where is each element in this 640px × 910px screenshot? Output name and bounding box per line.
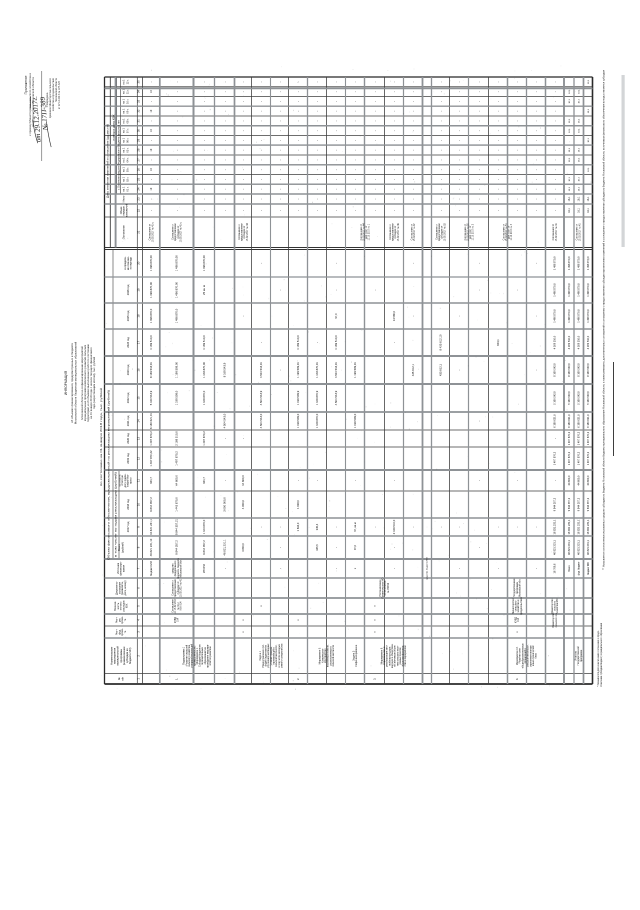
- svg-text:4 169 510,0: 4 169 510,0: [567, 335, 571, 349]
- svg-text:604,1: 604,1: [496, 339, 500, 346]
- svg-text:14: 14: [136, 419, 140, 423]
- svg-text:сельского хозяйства: сельского хозяйства: [188, 644, 191, 667]
- svg-text:15: 15: [136, 396, 140, 400]
- svg-text:11.10.2017 № 2: 11.10.2017 № 2: [472, 223, 475, 240]
- svg-text:2022 год: 2022 год: [126, 392, 130, 403]
- svg-text:ИНФОРМАЦИЯ: ИНФОРМАЦИЯ: [64, 370, 68, 395]
- svg-text:24: 24: [136, 187, 140, 191]
- svg-text:11: 11: [136, 479, 140, 482]
- svg-text:п/п: п/п: [120, 676, 124, 680]
- svg-text:Всего: Всего: [568, 565, 571, 572]
- svg-text:08 г.: 08 г.: [126, 118, 130, 123]
- svg-text:05 г.: 05 г.: [126, 147, 130, 152]
- svg-text:сельской местности: сельской местности: [332, 644, 335, 666]
- svg-text:46 821 231,10: 46 821 231,10: [149, 538, 153, 556]
- svg-text:врату: врату: [130, 477, 133, 484]
- svg-text:5 160 543,9: 5 160 543,9: [567, 391, 571, 405]
- svg-text:06 г.: 06 г.: [126, 138, 130, 143]
- svg-text:базы: базы: [536, 653, 538, 659]
- svg-text:1 448 870,91: 1 448 870,91: [315, 362, 319, 379]
- svg-text:30: 30: [136, 129, 140, 133]
- svg-text:фед. бюджет: фед. бюджет: [578, 561, 581, 576]
- svg-text:4 169 510,0: 4 169 510,0: [586, 335, 590, 349]
- svg-text:Мероприятие 1.: Мероприятие 1.: [197, 647, 199, 665]
- svg-text:9 844 357,2: 9 844 357,2: [175, 540, 179, 555]
- svg-text:9 844 357,2: 9 844 357,2: [202, 540, 206, 555]
- svg-text:16,1: 16,1: [578, 208, 581, 213]
- svg-text:16 821 231,1: 16 821 231,1: [586, 519, 590, 534]
- svg-text:1 496 870,00: 1 496 870,00: [175, 255, 179, 272]
- svg-text:на 1: на 1: [122, 137, 126, 143]
- svg-text:1 496 870,0: 1 496 870,0: [553, 309, 557, 323]
- svg-text:4 169 510,0: 4 169 510,0: [149, 335, 153, 350]
- svg-text:9 844 357,2: 9 844 357,2: [553, 497, 557, 511]
- svg-text:1 199 509,91: 1 199 509,91: [353, 362, 357, 379]
- svg-text:25 кв. м: 25 кв. м: [202, 285, 206, 295]
- svg-text:1 496 870,0: 1 496 870,0: [553, 256, 557, 270]
- svg-text:15.02.2017 № 51: 15.02.2017 № 51: [505, 223, 508, 242]
- svg-text:15.02.2017 № 41-с: 15.02.2017 № 41-с: [179, 221, 182, 242]
- svg-text:на 1: на 1: [122, 167, 126, 173]
- svg-text:1 497 870,2: 1 497 870,2: [577, 451, 581, 465]
- svg-text:29: 29: [136, 138, 140, 142]
- svg-text:11 г.: 11 г.: [126, 89, 130, 94]
- svg-text:4 504 543,0: 4 504 543,0: [259, 413, 263, 428]
- svg-text:18: 18: [136, 314, 140, 318]
- svg-text:1 496 870,0: 1 496 870,0: [586, 256, 590, 270]
- svg-text:на 1: на 1: [122, 147, 126, 153]
- svg-text:1 496 870,0: 1 496 870,0: [567, 283, 571, 297]
- svg-text:на 1: на 1: [122, 108, 126, 114]
- svg-text:1 634,0: 1 634,0: [296, 522, 300, 531]
- svg-text:Мероприятие 8.: Мероприятие 8.: [381, 647, 383, 665]
- svg-text:Соглашение о: Соглашение о: [390, 224, 392, 240]
- svg-text:2023 год: 2023 год: [126, 364, 130, 375]
- svg-text:1 496 870,0: 1 496 870,0: [586, 309, 590, 323]
- svg-text:9 844 357,2: 9 844 357,2: [586, 497, 590, 511]
- svg-text:16 821 231,1: 16 821 231,1: [567, 519, 571, 534]
- svg-text:31: 31: [136, 119, 140, 123]
- svg-text:Государственная: Государственная: [514, 578, 516, 597]
- svg-text:ленных пунктов,: ленных пунктов,: [400, 647, 402, 665]
- svg-text:44 600,0: 44 600,0: [241, 475, 245, 486]
- svg-text:44 600,0: 44 600,0: [175, 475, 179, 486]
- svg-text:Софинансирование: Софинансирование: [355, 644, 358, 667]
- svg-text:4 169 510,0: 4 169 510,0: [577, 335, 581, 349]
- svg-text:20: 20: [136, 261, 140, 265]
- svg-text:11.10.2017 № 1: 11.10.2017 № 1: [368, 223, 371, 240]
- svg-text:на 1: на 1: [122, 186, 126, 192]
- svg-text:12 г.: 12 г.: [126, 79, 130, 84]
- svg-text:1 199 509,0: 1 199 509,0: [175, 390, 179, 405]
- svg-text:8 169 543,91: 8 169 543,91: [149, 362, 153, 379]
- svg-text:16 821 231,1: 16 821 231,1: [577, 519, 581, 534]
- svg-text:4.: 4.: [515, 677, 519, 679]
- svg-text:продовольствия: продовольствия: [521, 597, 523, 615]
- svg-text:1 497 870,2: 1 497 870,2: [586, 431, 590, 445]
- svg-text:Соглашение от: Соглашение от: [553, 223, 555, 240]
- svg-text:1 496 870,00: 1 496 870,00: [149, 255, 153, 272]
- svg-text:реконструкция авто-: реконструкция авто-: [387, 645, 389, 667]
- svg-text:2024 год: 2024 год: [126, 337, 130, 348]
- svg-text:на 1: на 1: [122, 157, 126, 163]
- svg-text:1 496 870,0: 1 496 870,0: [175, 308, 179, 323]
- svg-text:12: 12: [136, 457, 140, 461]
- svg-text:15.02.2017 № 41: 15.02.2017 № 41: [578, 223, 581, 242]
- svg-text:1.: 1.: [175, 677, 179, 679]
- svg-text:дата, номер): дата, номер): [124, 580, 127, 595]
- svg-text:1 443 870,0: 1 443 870,0: [202, 519, 206, 534]
- svg-text:6 180 621,0: 6 180 621,0: [577, 414, 581, 428]
- svg-text:2.: 2.: [296, 677, 300, 679]
- svg-text:субсидии от: субсидии от: [244, 225, 246, 239]
- svg-text:4 169 510,0: 4 169 510,0: [296, 335, 300, 350]
- svg-text:1 448 870,00: 1 448 870,00: [202, 362, 206, 379]
- svg-text:программе: программе: [580, 649, 583, 662]
- svg-text:2020 год: 2020 год: [126, 433, 130, 444]
- svg-text:в том числе по годам реализаци: в том числе по годам реализации (рублей): [115, 472, 118, 557]
- svg-text:2019 год: 2019 год: [126, 453, 130, 464]
- svg-text:предоставлении: предоставлении: [175, 223, 177, 241]
- svg-text:02 г.: 02 г.: [126, 177, 130, 182]
- svg-text:** Указывается остаток неиспол: ** Указывается остаток неиспользованных …: [603, 69, 606, 570]
- svg-text:46 821 231,1: 46 821 231,1: [586, 539, 590, 554]
- svg-text:345,4: 345,4: [315, 523, 319, 530]
- svg-text:32: 32: [136, 109, 140, 113]
- svg-text:28: 28: [136, 148, 140, 152]
- svg-text:464,7: 464,7: [202, 477, 206, 484]
- svg-text:го периода: го периода: [130, 256, 133, 269]
- svg-text:34: 34: [136, 90, 140, 94]
- svg-text:хозяйства и: хозяйства и: [517, 599, 520, 612]
- svg-text:97,0: 97,0: [334, 313, 338, 319]
- svg-text:9 844 357,2: 9 844 357,2: [577, 497, 581, 511]
- svg-text:35: 35: [136, 80, 140, 84]
- svg-text:населенных пунктов,: населенных пунктов,: [328, 644, 330, 667]
- svg-text:мобильных дорог,: мобильных дорог,: [389, 646, 391, 666]
- svg-text:Итого: Итого: [122, 195, 126, 202]
- svg-text:1 199 509,0: 1 199 509,0: [353, 413, 357, 428]
- svg-text:464,7: 464,7: [149, 477, 153, 484]
- svg-text:1 443 870,0: 1 443 870,0: [175, 497, 179, 512]
- svg-text:16 821 231,1: 16 821 231,1: [149, 519, 153, 536]
- svg-text:04 г.: 04 г.: [126, 157, 130, 162]
- svg-text:на 1: на 1: [122, 89, 126, 95]
- svg-text:1 496 870,00: 1 496 870,00: [175, 282, 179, 299]
- svg-text:семей и специалистов: семей и специалистов: [280, 643, 283, 668]
- svg-text:номер и дата КБК: номер и дата КБК: [113, 114, 116, 141]
- svg-text:15.02.2017 № 41: 15.02.2017 № 41: [179, 578, 182, 597]
- svg-text:19: 19: [136, 288, 140, 292]
- svg-text:обустройство: обустройство: [324, 648, 327, 663]
- svg-text:1 199 509,91: 1 199 509,91: [296, 362, 300, 379]
- svg-text:полномочий: полномочий: [125, 203, 128, 217]
- svg-text:бюджет МО: бюджет МО: [149, 561, 153, 576]
- svg-text:9 844 357,2: 9 844 357,2: [149, 497, 153, 512]
- svg-text:46 821 231,1: 46 821 231,1: [553, 539, 557, 554]
- svg-text:№ 41-с: № 41-с: [177, 601, 180, 610]
- svg-text:97,0: 97,0: [353, 544, 357, 550]
- svg-text:6 180 621,0: 6 180 621,0: [567, 414, 571, 428]
- svg-text:сельской местности,: сельской местности,: [275, 644, 278, 667]
- svg-text:26: 26: [136, 168, 140, 172]
- svg-text:3 000 000,0: 3 000 000,0: [223, 497, 227, 512]
- svg-text:4 504 543,0: 4 504 543,0: [223, 413, 227, 428]
- svg-text:4 504 543,91: 4 504 543,91: [334, 362, 338, 379]
- svg-text:1 496 870,0: 1 496 870,0: [577, 256, 581, 270]
- svg-text:4 800,0: 4 800,0: [241, 543, 245, 552]
- svg-text:Министерство: Министерство: [513, 598, 515, 614]
- svg-text:сельской местности,: сельской местности,: [527, 644, 530, 667]
- svg-text:года (нарастающим итогом), тыс: года (нарастающим итогом), тыс. рублей: [92, 356, 96, 409]
- svg-text:2026 год: 2026 год: [126, 284, 130, 295]
- svg-text:1 496 870,00: 1 496 870,00: [149, 282, 153, 299]
- svg-text:1 448 870,9: 1 448 870,9: [315, 390, 319, 405]
- svg-text:2021 год: 2021 год: [126, 415, 130, 426]
- svg-text:1 496 870,0: 1 496 870,0: [149, 308, 153, 323]
- svg-text:ИТОГО: ИТОГО: [202, 564, 206, 573]
- svg-text:1 497 870,2: 1 497 870,2: [175, 451, 179, 466]
- svg-text:хозяйства МО: хозяйства МО: [556, 598, 559, 613]
- svg-text:4 169 510,0: 4 169 510,0: [202, 335, 206, 350]
- svg-text:01 г.: 01 г.: [126, 186, 130, 191]
- svg-text:5 160 543,9: 5 160 543,9: [149, 390, 153, 405]
- svg-text:условий граждан,: условий граждан,: [270, 646, 273, 665]
- svg-text:22: 22: [136, 209, 140, 213]
- svg-text:1 497 870,2: 1 497 870,2: [567, 451, 571, 465]
- svg-text:№ 788/39: № 788/39: [387, 582, 390, 593]
- svg-text:Постановление: Постановление: [380, 579, 382, 596]
- svg-text:с Остатком средств Федеральног: с Остатком средств Федерального бюджета …: [117, 119, 120, 190]
- svg-text:10: 10: [136, 503, 140, 507]
- svg-text:1 497 870,2: 1 497 870,2: [567, 431, 571, 445]
- svg-text:44 600,0: 44 600,0: [567, 475, 571, 485]
- svg-text:1 199 509,00: 1 199 509,00: [175, 362, 179, 379]
- svg-text:16,1: 16,1: [587, 196, 590, 201]
- svg-text:3.: 3.: [372, 677, 376, 679]
- svg-text:Объем финансового обеспечения,: Объем финансового обеспечения, предусмот…: [107, 390, 111, 560]
- svg-text:46 821 231,1: 46 821 231,1: [567, 539, 571, 554]
- svg-text:1 497 870,2: 1 497 870,2: [577, 431, 581, 445]
- svg-text:образований на: образований на: [204, 647, 207, 665]
- svg-text:Соглашение о: Соглашение о: [239, 224, 241, 240]
- svg-text:субсидии от: субсидии от: [395, 225, 397, 239]
- svg-text:Даты внесения изменений в согл: Даты внесения изменений в соглашение (дд…: [107, 124, 110, 198]
- svg-text:по состоянию на 01 января 2018: по состоянию на 01 января 2018 года, тыс…: [99, 387, 103, 486]
- svg-text:1 497 870,22: 1 497 870,22: [149, 450, 153, 467]
- svg-text:15.02.2017 № 50: 15.02.2017 № 50: [467, 223, 470, 242]
- svg-text:1 497 870,2: 1 497 870,2: [553, 451, 557, 465]
- svg-text:Развитие сети: Развитие сети: [520, 647, 522, 663]
- svg-text:Московской области бюджетам му: Московской области бюджетам муниципальны…: [73, 341, 77, 424]
- svg-text:435 612,1: 435 612,1: [438, 364, 442, 376]
- svg-text:бюджета МО): бюджета МО): [128, 647, 132, 664]
- svg-text:Предоставление суб-: Предоставление суб-: [263, 644, 265, 667]
- svg-text:33: 33: [136, 99, 140, 103]
- svg-text:2017 год: 2017 год: [126, 521, 130, 532]
- svg-text:Соглашение о: Соглашение о: [436, 224, 438, 240]
- svg-text:16,1: 16,1: [578, 196, 581, 201]
- svg-text:6 180 621,01: 6 180 621,01: [149, 413, 153, 430]
- svg-text:2 169 510,0: 2 169 510,0: [175, 431, 179, 446]
- svg-text:ятий по развитию: ятий по развитию: [209, 646, 212, 665]
- svg-text:1 497 870,2: 1 497 870,2: [149, 431, 153, 446]
- svg-text:10 г.: 10 г.: [126, 99, 130, 104]
- svg-text:2025 год: 2025 год: [126, 310, 130, 321]
- svg-text:8 169 543,9: 8 169 543,9: [553, 363, 557, 377]
- svg-text:1 496 870,0: 1 496 870,0: [577, 283, 581, 297]
- svg-text:ально-технической: ально-технической: [532, 645, 535, 666]
- svg-text:6 180 621,0: 6 180 621,0: [553, 414, 557, 428]
- svg-text:4 504 543,91: 4 504 543,91: [259, 362, 263, 379]
- svg-text:44 600,0: 44 600,0: [577, 475, 581, 485]
- svg-text:1 199 509,0: 1 199 509,0: [296, 413, 300, 428]
- svg-text:на 1: на 1: [122, 98, 126, 104]
- svg-text:Мероприятие 5.: Мероприятие 5.: [320, 647, 322, 665]
- svg-text:КБК 014: КБК 014: [180, 601, 182, 610]
- svg-text:15.02.2017 № 49: 15.02.2017 № 49: [397, 222, 400, 241]
- svg-text:5 160 543,9: 5 160 543,9: [586, 391, 590, 405]
- svg-text:15.02.2017 № 41-с: 15.02.2017 № 41-с: [151, 221, 154, 242]
- svg-text:4 504 543,9: 4 504 543,9: [259, 390, 263, 405]
- svg-text:13: 13: [136, 437, 140, 441]
- svg-text:09 г.: 09 г.: [126, 108, 130, 113]
- svg-text:субсидии от: субсидии от: [442, 225, 444, 239]
- svg-text:вания: вания: [123, 564, 126, 572]
- svg-text:предоставлении: предоставлении: [175, 578, 177, 596]
- svg-text:15.02.2017 № 44: 15.02.2017 № 44: [246, 222, 249, 241]
- svg-text:9 844 357,21: 9 844 357,21: [175, 519, 179, 536]
- svg-text:(рублей): (рублей): [120, 542, 124, 553]
- svg-text:КБК: КБК: [126, 603, 129, 608]
- svg-text:9 844 357,2: 9 844 357,2: [567, 497, 571, 511]
- svg-text:15.02.2017 № 47: 15.02.2017 № 47: [413, 223, 416, 242]
- svg-text:Основание: Основание: [122, 225, 126, 239]
- svg-text:4 504 543,9: 4 504 543,9: [334, 390, 338, 405]
- svg-text:345,5: 345,5: [315, 544, 319, 551]
- svg-text:8 169 543,9: 8 169 543,9: [577, 363, 581, 377]
- svg-text:от 15.02.2017: от 15.02.2017: [175, 598, 177, 613]
- svg-text:улучшение жилищных: улучшение жилищных: [268, 643, 270, 668]
- svg-text:44 600,0: 44 600,0: [586, 475, 590, 485]
- svg-text:1 496 870,0: 1 496 870,0: [577, 309, 581, 323]
- svg-text:97, кв.м: 97, кв.м: [353, 522, 357, 532]
- svg-text:ства и переработки: ства и переработки: [405, 645, 407, 667]
- svg-text:11.10.2017 № 3: 11.10.2017 № 3: [510, 223, 513, 240]
- svg-text:2 169 510,0: 2 169 510,0: [392, 519, 396, 534]
- svg-text:общеобразовательных: общеобразовательных: [522, 643, 524, 669]
- svg-text:федерального: федерального: [174, 560, 177, 576]
- svg-text:8 435 612,10: 8 435 612,10: [439, 334, 443, 351]
- svg-text:1 497 870,2: 1 497 870,2: [586, 451, 590, 465]
- svg-text:03 г.: 03 г.: [126, 167, 130, 172]
- svg-text:Московской обл.: Московской обл.: [179, 559, 182, 577]
- svg-text:средства бюджета МО: средства бюджета МО: [427, 557, 429, 580]
- svg-text:1 497 870,2: 1 497 870,2: [202, 431, 206, 446]
- svg-text:сельского хоз.: сельского хоз.: [556, 612, 558, 627]
- svg-text:организаций в: организаций в: [524, 647, 527, 663]
- svg-text:на 1: на 1: [122, 118, 126, 124]
- svg-text:16 709,6: 16 709,6: [553, 563, 557, 573]
- svg-text:Комплексное: Комплексное: [322, 648, 324, 663]
- svg-text:муниципальных: муниципальных: [202, 646, 204, 664]
- svg-text:1 448 870,0: 1 448 870,0: [202, 390, 206, 405]
- svg-text:4 800,0: 4 800,0: [241, 499, 245, 509]
- svg-text:1 199 509,9: 1 199 509,9: [296, 390, 300, 405]
- svg-text:1 496 870,0: 1 496 870,0: [567, 309, 571, 323]
- svg-text:435 612,1: 435 612,1: [411, 363, 415, 376]
- svg-text:сидий бюджетам на: сидий бюджетам на: [265, 644, 268, 666]
- svg-text:5 160 543,9: 5 160 543,9: [577, 391, 581, 405]
- svg-text:8 169 543,9: 8 169 543,9: [223, 362, 227, 377]
- svg-text:21: 21: [136, 230, 140, 234]
- svg-text:15.02.2017 № 41: 15.02.2017 № 41: [555, 222, 558, 241]
- svg-text:Московской обл.: Московской обл.: [518, 579, 521, 597]
- svg-text:8 169 543,9: 8 169 543,9: [567, 363, 571, 377]
- svg-text:17: 17: [136, 341, 140, 345]
- svg-text:ставлении субсидии бюджету мун: ставлении субсидии бюджету муниципальног…: [601, 622, 603, 687]
- svg-text:2018 год: 2018 год: [126, 499, 130, 510]
- svg-text:16,1: 16,1: [587, 208, 590, 213]
- svg-text:4 169 510,0: 4 169 510,0: [553, 335, 557, 349]
- svg-text:5 160 543,9: 5 160 543,9: [553, 391, 557, 405]
- svg-text:от 27.12.2017 № 17П-374: от 27.12.2017 № 17П-374: [58, 80, 61, 109]
- svg-text:07 г.: 07 г.: [126, 128, 130, 133]
- svg-text:14 580,0: 14 580,0: [392, 310, 396, 321]
- svg-text:15.02.2017 № 52: 15.02.2017 № 52: [443, 222, 446, 241]
- svg-text:бюджет МО: бюджет МО: [588, 562, 590, 575]
- svg-text:16: 16: [136, 368, 140, 372]
- svg-text:«Развитие отраслей: «Развитие отраслей: [185, 644, 188, 667]
- svg-text:16,1: 16,1: [568, 208, 571, 213]
- svg-text:1 496 870,0: 1 496 870,0: [553, 283, 557, 297]
- svg-text:27: 27: [136, 158, 140, 162]
- svg-text:проживающих в: проживающих в: [273, 646, 275, 664]
- svg-text:но значимым объек-: но значимым объек-: [395, 645, 397, 667]
- svg-text:4 169 510,0: 4 169 510,0: [334, 335, 338, 350]
- svg-text:1 448 870,0: 1 448 870,0: [315, 413, 319, 428]
- svg-text:23: 23: [136, 197, 140, 201]
- svg-text:от 25.10.2016: от 25.10.2016: [385, 580, 387, 595]
- svg-text:1 496 870,00: 1 496 870,00: [202, 255, 206, 272]
- svg-text:16,1: 16,1: [568, 196, 571, 201]
- svg-text:* Указывается дата заключения: * Указывается дата заключения соглашения…: [598, 630, 600, 687]
- svg-text:6 180 621,0: 6 180 621,0: [586, 414, 590, 428]
- svg-text:1 496 870,0: 1 496 870,0: [586, 283, 590, 297]
- svg-text:и перерабатывающей: и перерабатывающей: [191, 643, 194, 667]
- svg-text:на 1: на 1: [122, 128, 126, 134]
- svg-text:46 821 231,1: 46 821 231,1: [577, 539, 581, 554]
- svg-text:на 1: на 1: [122, 176, 126, 182]
- svg-text:8 169 543,9: 8 169 543,9: [586, 363, 590, 377]
- svg-text:1 638,0: 1 638,0: [296, 500, 300, 509]
- svg-text:15.02.2017 № 44: 15.02.2017 № 44: [363, 223, 366, 242]
